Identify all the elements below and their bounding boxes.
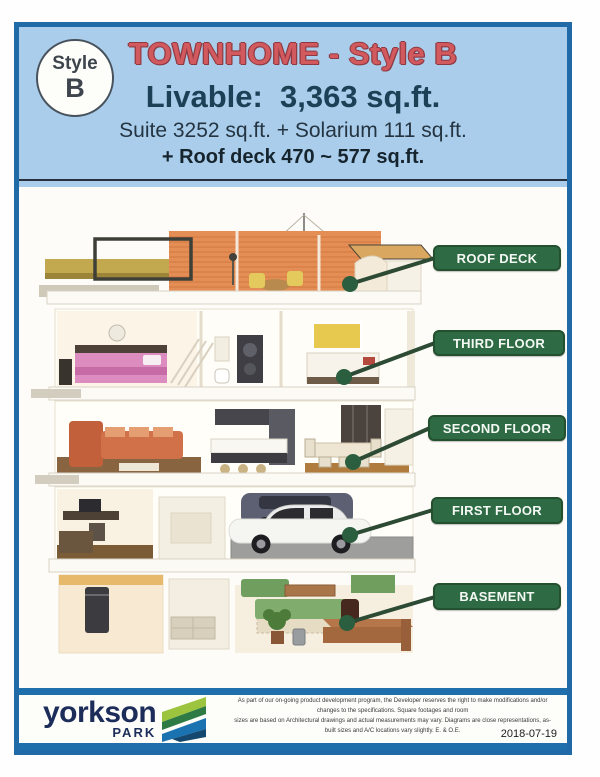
suite-solarium-text: Suite 3252 sq.ft. + Solarium 111 sq.ft. (19, 119, 567, 143)
armchair (59, 359, 72, 385)
coffee-table (285, 585, 335, 596)
pink-bed (75, 345, 167, 383)
green-sofa (241, 579, 289, 597)
style-b-badge: Style B (36, 39, 114, 117)
footer: yorkson PARK As part of our on-going pro… (19, 688, 567, 750)
footer-top-band (19, 688, 567, 695)
office-den (57, 489, 153, 559)
bathroom (215, 335, 263, 383)
flyer-page: Style B TOWNHOME - Style B Livable: 3,36… (0, 0, 600, 777)
header-divider (19, 179, 567, 181)
floor-label-roof-deck: ROOF DECK (433, 245, 561, 271)
mirror (109, 325, 125, 341)
badge-style-text: Style (52, 54, 97, 73)
rec-room (235, 575, 413, 653)
illustration-area: ROOF DECK THIRD FLOOR SECOND FLOOR FIRST… (19, 187, 567, 688)
roof-deck-area-text: + Roof deck 470 ~ 577 sq.ft. (19, 146, 567, 169)
flyer-sheet: Style B TOWNHOME - Style B Livable: 3,36… (14, 22, 572, 755)
first-floor-illustration (49, 487, 415, 572)
callout-dot-roof-deck (342, 276, 358, 292)
floor-label-first-floor: FIRST FLOOR (431, 497, 563, 524)
disclaimer-line-1: As part of our on-going product developm… (234, 696, 551, 716)
callout-dot-basement (339, 615, 355, 631)
callout-dot-second-floor (345, 454, 361, 470)
footer-body: yorkson PARK As part of our on-going pro… (19, 695, 567, 743)
third-floor-illustration (31, 309, 415, 400)
header: Style B TOWNHOME - Style B Livable: 3,36… (19, 27, 567, 187)
footer-bottom-band (19, 743, 567, 750)
gym-room (59, 575, 163, 653)
yorkson-park-logo-icon (162, 696, 206, 742)
brand-name: yorkson (43, 700, 156, 726)
floor-label-second-floor: SECOND FLOOR (428, 415, 566, 441)
second-floor-illustration (35, 401, 415, 486)
roof-deck-illustration (39, 213, 433, 304)
date-stamp: 2018-07-19 (501, 728, 557, 740)
callout-dot-third-floor (336, 369, 352, 385)
treadmill (85, 587, 109, 633)
callout-dot-first-floor (342, 527, 358, 543)
badge-letter: B (65, 75, 85, 102)
floor-label-basement: BASEMENT (433, 583, 561, 610)
waste-bin (293, 629, 305, 645)
floor-label-third-floor: THIRD FLOOR (433, 330, 565, 356)
yorkson-park-logo: yorkson PARK (43, 696, 206, 742)
basement-illustration (59, 575, 413, 653)
